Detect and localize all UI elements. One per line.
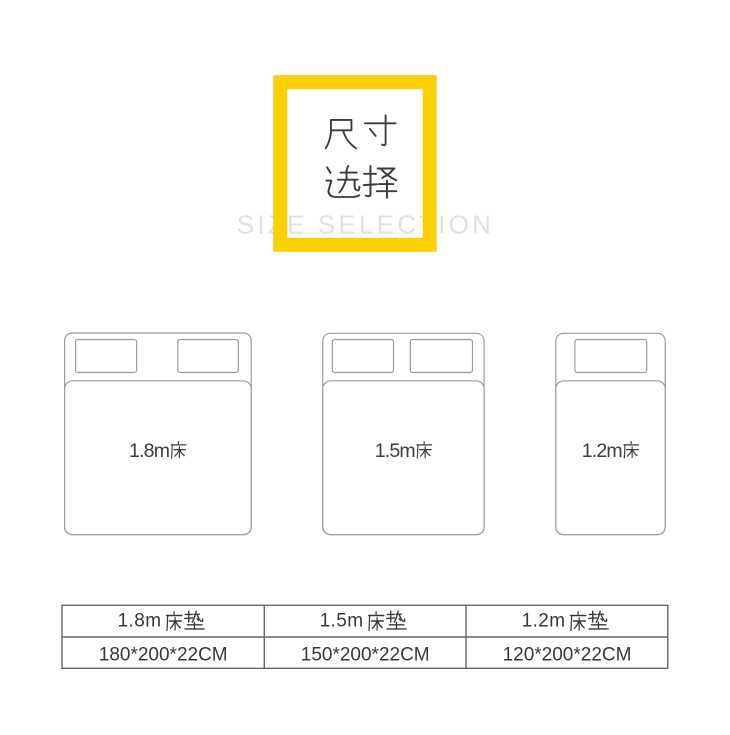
svg-text:1.8m: 1.8m xyxy=(118,611,162,632)
svg-text:120*200*22CM: 120*200*22CM xyxy=(503,644,632,665)
svg-text:1.2m: 1.2m xyxy=(522,611,566,632)
svg-text:1.2m: 1.2m xyxy=(582,440,622,462)
svg-text:1.5m: 1.5m xyxy=(375,440,415,462)
svg-text:1.5m: 1.5m xyxy=(320,611,364,632)
svg-text:1.8m: 1.8m xyxy=(129,440,169,462)
svg-text:150*200*22CM: 150*200*22CM xyxy=(301,644,430,665)
svg-text:180*200*22CM: 180*200*22CM xyxy=(99,644,228,665)
